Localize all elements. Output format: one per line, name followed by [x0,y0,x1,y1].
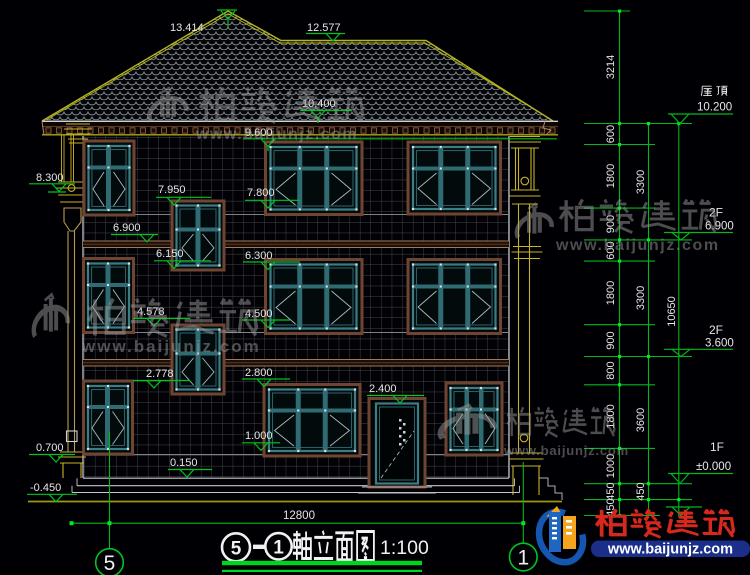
svg-text:10650: 10650 [666,296,678,327]
svg-text:1F: 1F [710,440,724,454]
svg-text:www.baijunjz.com: www.baijunjz.com [195,126,358,143]
svg-text:1: 1 [273,538,284,559]
svg-text:www.baijunjz.com: www.baijunjz.com [607,542,733,558]
svg-text:0.700: 0.700 [36,442,64,454]
svg-text:800: 800 [605,361,617,379]
svg-text:900: 900 [605,331,617,349]
svg-text:12800: 12800 [283,510,315,522]
svg-text:7.800: 7.800 [247,187,275,199]
svg-text:www.baijunjz.com: www.baijunjz.com [503,443,629,458]
svg-text:2.400: 2.400 [369,383,397,395]
svg-text:0.150: 0.150 [170,457,198,469]
svg-text:1.000: 1.000 [245,430,273,442]
svg-text:1:100: 1:100 [380,537,429,559]
svg-text:5: 5 [104,552,116,575]
svg-text:3600: 3600 [635,408,647,432]
svg-text:8.300: 8.300 [36,172,64,184]
svg-text:-0.450: -0.450 [30,482,61,494]
svg-text:www.baijunjz.com: www.baijunjz.com [555,237,720,254]
svg-text:10.200: 10.200 [697,102,732,114]
svg-text:6.150: 6.150 [156,248,184,260]
svg-text:5: 5 [231,539,242,560]
svg-text:1: 1 [517,547,529,570]
svg-text:1800: 1800 [605,164,617,188]
svg-text:2.778: 2.778 [146,368,174,380]
svg-text:3214: 3214 [605,55,617,79]
svg-text:13.414: 13.414 [170,22,204,34]
svg-text:450: 450 [635,482,647,500]
svg-text:12.577: 12.577 [307,22,341,34]
svg-text:450: 450 [605,482,617,500]
svg-text:3300: 3300 [635,286,647,310]
svg-text:6.900: 6.900 [113,222,141,234]
svg-text:2.800: 2.800 [245,367,273,379]
svg-text:1800: 1800 [605,281,617,305]
svg-text:2F: 2F [709,323,723,337]
svg-text:6.300: 6.300 [245,250,273,262]
svg-text:600: 600 [605,125,617,143]
svg-text:±0.000: ±0.000 [696,461,731,473]
svg-text:3300: 3300 [635,170,647,194]
svg-text:3.600: 3.600 [705,338,734,350]
svg-text:www.baijunjz.com: www.baijunjz.com [81,337,261,356]
svg-text:7.950: 7.950 [158,184,186,196]
